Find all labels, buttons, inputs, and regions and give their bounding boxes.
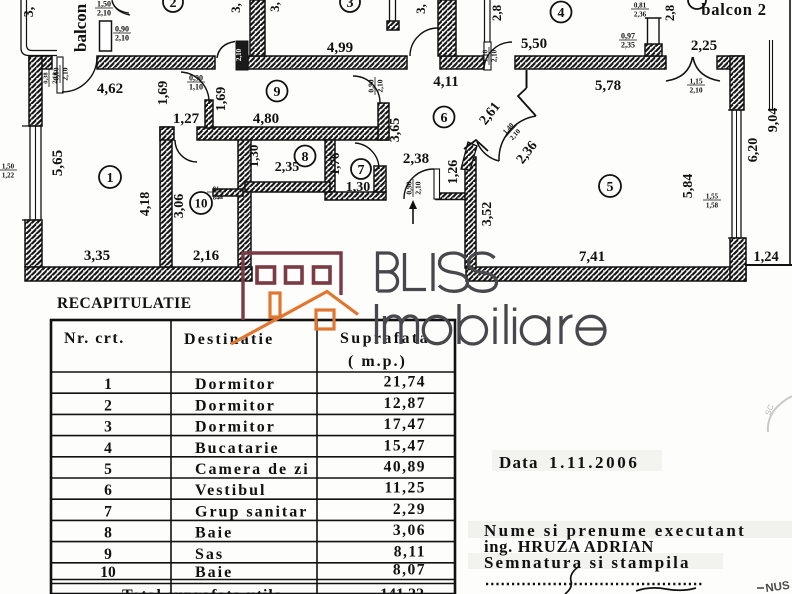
svg-text:7: 7 (358, 163, 365, 178)
svg-text:Destinatie: Destinatie (184, 331, 274, 348)
svg-text:1,10: 1,10 (482, 49, 490, 62)
svg-text:2,36: 2,36 (634, 11, 647, 19)
svg-text:3,: 3, (22, 7, 37, 18)
svg-text:2,10: 2,10 (491, 49, 499, 62)
svg-text:3: 3 (104, 419, 112, 436)
svg-text:5,84: 5,84 (681, 174, 696, 199)
svg-text:40,89: 40,89 (384, 459, 426, 476)
svg-text:15,47: 15,47 (384, 437, 426, 454)
svg-text:balcon: balcon (71, 3, 90, 52)
svg-text:8,11: 8,11 (394, 543, 426, 560)
svg-text:2,35: 2,35 (275, 160, 300, 175)
svg-text:1,55: 1,55 (706, 193, 719, 201)
svg-text:Dormitor: Dormitor (195, 376, 276, 393)
svg-text:1: 1 (104, 376, 112, 393)
svg-text:4,18: 4,18 (138, 192, 153, 217)
svg-text:Total suprafata utila: Total suprafata utila (122, 587, 283, 594)
svg-text:1,50: 1,50 (97, 0, 111, 9)
svg-text:2,10: 2,10 (235, 48, 243, 61)
svg-text:1,58: 1,58 (706, 202, 719, 210)
svg-text:( m.p.): ( m.p.) (348, 353, 407, 370)
svg-text:12,87: 12,87 (384, 395, 426, 412)
svg-text:balcon 2: balcon 2 (701, 0, 767, 19)
svg-text:2,10: 2,10 (414, 181, 423, 194)
svg-text:Baie: Baie (195, 525, 233, 542)
svg-text:0,90: 0,90 (115, 25, 129, 34)
svg-text:1,69: 1,69 (156, 81, 171, 106)
svg-text:5: 5 (607, 180, 614, 195)
svg-text:1,30: 1,30 (246, 145, 261, 168)
svg-text:0,97: 0,97 (621, 32, 635, 41)
svg-text:8: 8 (104, 525, 112, 542)
svg-text:10: 10 (195, 196, 208, 211)
svg-text:1,15: 1,15 (689, 77, 702, 86)
svg-text:a: a (219, 192, 223, 201)
svg-text:7: 7 (104, 503, 112, 520)
svg-text:Data: Data (499, 453, 539, 472)
svg-text:3,: 3, (267, 2, 282, 12)
svg-text:Sas: Sas (195, 546, 224, 563)
svg-text:2: 2 (104, 397, 112, 414)
svg-text:4: 4 (104, 440, 112, 457)
svg-text:84: 84 (213, 195, 220, 202)
svg-text:3,52: 3,52 (480, 202, 495, 227)
svg-text:Baie: Baie (195, 564, 233, 581)
svg-text:17,47: 17,47 (384, 416, 426, 433)
svg-text:6,20: 6,20 (746, 138, 761, 163)
svg-text:2,10: 2,10 (376, 79, 385, 92)
svg-text:1,30: 1,30 (346, 180, 371, 195)
svg-text:7,41: 7,41 (579, 249, 605, 265)
svg-text:Grup sanitar: Grup sanitar (195, 503, 308, 520)
svg-text:5: 5 (104, 461, 112, 478)
svg-text:8,07: 8,07 (393, 562, 426, 579)
svg-text:0,90: 0,90 (405, 181, 414, 194)
svg-text:1,76: 1,76 (327, 152, 342, 175)
svg-text:RECAPITULATIE: RECAPITULATIE (57, 295, 192, 312)
svg-text:Vestibul: Vestibul (195, 482, 266, 499)
svg-text:Dormitor: Dormitor (195, 397, 276, 414)
svg-text:4: 4 (558, 6, 565, 21)
svg-text:3,: 3, (413, 4, 428, 14)
svg-text:0,90: 0,90 (189, 74, 203, 83)
svg-text:3,65: 3,65 (388, 118, 403, 143)
svg-text:1,26: 1,26 (446, 160, 461, 185)
svg-text:Camera de zi: Camera de zi (195, 461, 310, 478)
svg-text:0,81: 0,81 (634, 2, 647, 10)
svg-text:6: 6 (104, 482, 112, 499)
svg-text:3: 3 (347, 0, 354, 11)
svg-text:0,90: 0,90 (367, 79, 376, 92)
svg-text:4,62: 4,62 (97, 81, 123, 97)
svg-text:5,50: 5,50 (521, 36, 547, 52)
svg-text:2,10: 2,10 (61, 67, 70, 80)
svg-text:9: 9 (104, 546, 112, 563)
svg-text:2,16: 2,16 (193, 248, 220, 264)
svg-text:9: 9 (274, 85, 281, 100)
svg-text:3,06: 3,06 (393, 522, 426, 539)
svg-text:2: 2 (170, 0, 177, 11)
svg-text:Bucatarie: Bucatarie (195, 440, 280, 457)
svg-text:2,8: 2,8 (662, 4, 677, 21)
svg-text:141,22: 141,22 (380, 586, 424, 594)
svg-text:9,04: 9,04 (766, 108, 781, 133)
svg-text:8: 8 (302, 150, 309, 165)
svg-text:NUS: NUS (765, 580, 791, 594)
svg-text:1,22: 1,22 (2, 172, 15, 180)
svg-text:1,10: 1,10 (189, 83, 203, 92)
svg-text:2,10: 2,10 (115, 34, 129, 43)
svg-text:5,78: 5,78 (595, 78, 621, 94)
svg-text:5,65: 5,65 (50, 150, 66, 176)
svg-text:2,29: 2,29 (393, 501, 426, 518)
svg-text:1: 1 (107, 171, 114, 186)
svg-text:3,35: 3,35 (84, 248, 110, 264)
svg-text:4,99: 4,99 (327, 40, 353, 56)
svg-text:81: 81 (213, 186, 220, 193)
svg-text:Nr. crt.: Nr. crt. (64, 330, 125, 347)
svg-text:2,8: 2,8 (489, 4, 504, 21)
svg-text:Dormitor: Dormitor (195, 419, 276, 436)
svg-text:1.11.2006: 1.11.2006 (549, 453, 639, 472)
svg-text:Semnatura si stampila: Semnatura si stampila (484, 553, 691, 572)
svg-text:6: 6 (441, 111, 448, 126)
svg-text:1,50: 1,50 (2, 163, 15, 171)
svg-text:2,35: 2,35 (621, 41, 635, 50)
svg-text:3,: 3, (228, 3, 243, 13)
svg-text:2,38: 2,38 (403, 151, 429, 167)
svg-text:2,10: 2,10 (689, 86, 702, 95)
svg-text:1,24: 1,24 (753, 249, 778, 265)
svg-text:2,25: 2,25 (691, 38, 717, 54)
svg-text:21,74: 21,74 (384, 374, 426, 391)
svg-text:4,11: 4,11 (433, 74, 458, 90)
svg-text:2,10: 2,10 (97, 9, 111, 18)
svg-text:0,38: 0,38 (43, 72, 50, 84)
svg-text:1,69: 1,69 (214, 87, 229, 112)
svg-text:4,80: 4,80 (253, 111, 279, 127)
svg-text:1,27: 1,27 (173, 111, 200, 127)
svg-text:3,06: 3,06 (172, 194, 187, 219)
svg-text:10: 10 (100, 564, 116, 581)
svg-text:11,25: 11,25 (384, 480, 426, 497)
svg-text:2,10: 2,10 (52, 72, 59, 83)
